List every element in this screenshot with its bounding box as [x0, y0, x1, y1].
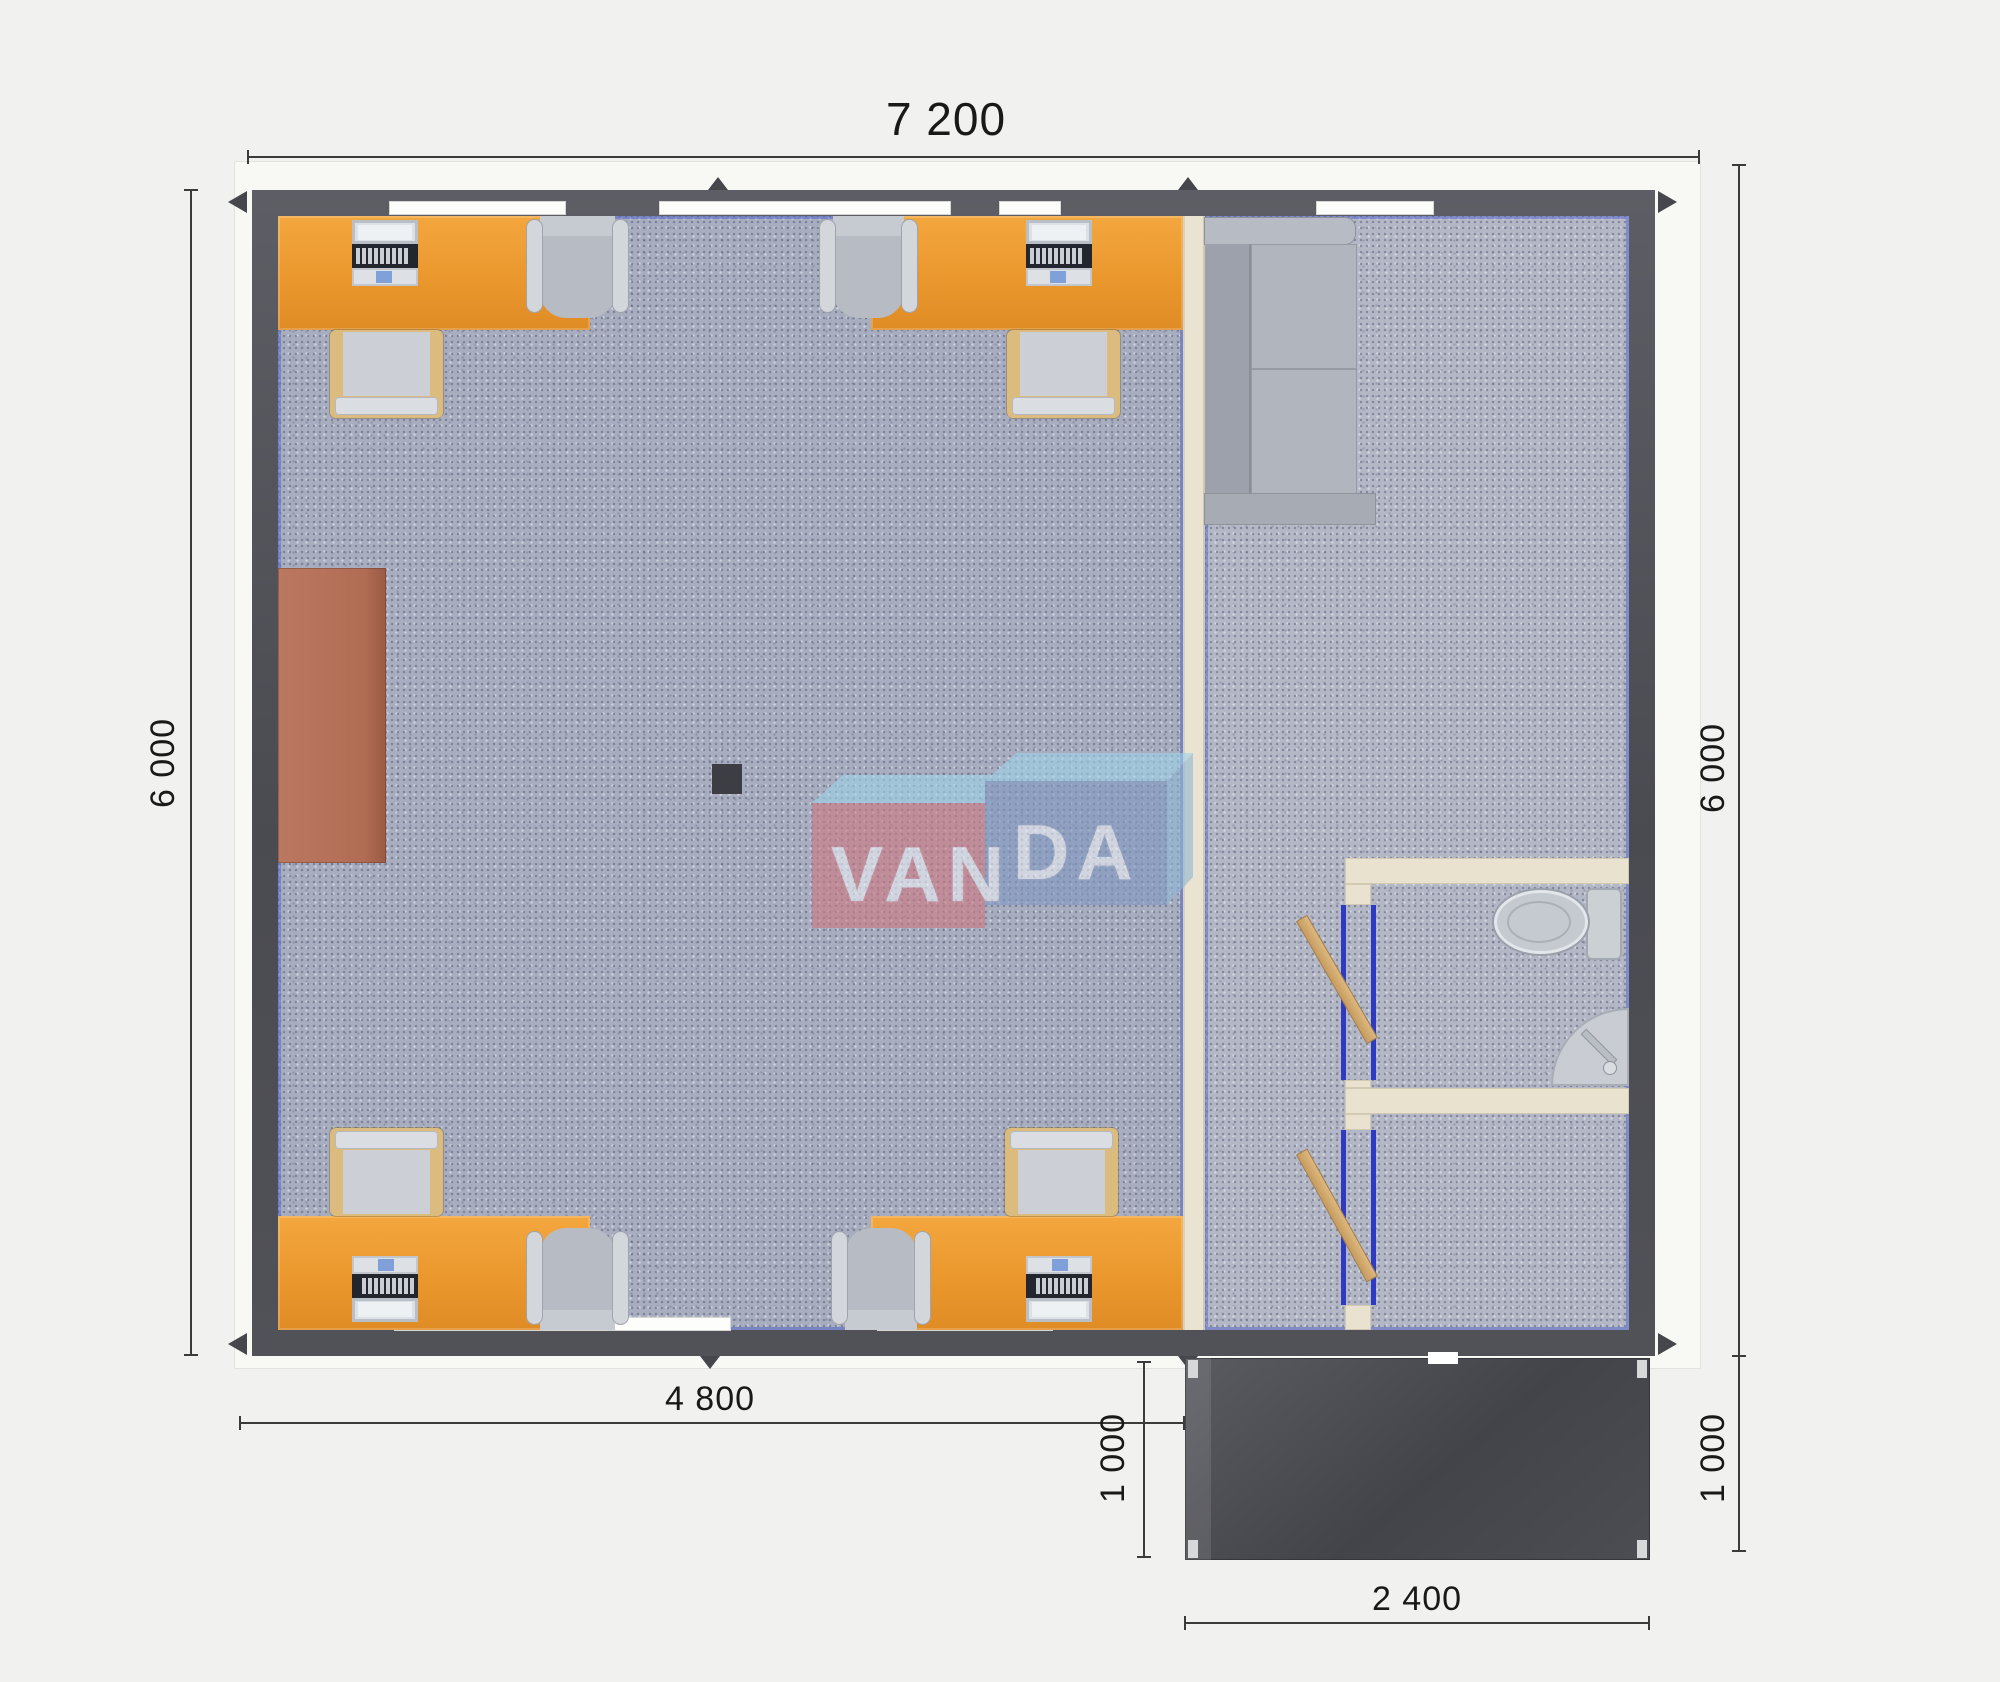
corner-marker-icon [228, 191, 247, 213]
entrance-porch [1185, 1358, 1650, 1560]
dimension-label-porch-right: 1 000 [1694, 1358, 1734, 1558]
porch-post [1637, 1360, 1647, 1378]
sofa-seat [1251, 369, 1357, 494]
office-chair [1005, 1128, 1118, 1216]
floor-column [712, 764, 742, 794]
dimension-label-bottom-left: 4 800 [610, 1380, 810, 1419]
toilet [1494, 890, 1588, 954]
wc-wall [1345, 1088, 1629, 1114]
armchair [527, 1228, 628, 1330]
laptop [352, 220, 418, 286]
dimension-tick [184, 1354, 198, 1356]
corner-marker-icon [228, 1333, 247, 1355]
dimension-tick [1137, 1556, 1151, 1558]
office-chair [330, 330, 443, 418]
entrance-door-threshold [1428, 1352, 1458, 1364]
dimension-line-top [248, 156, 1700, 158]
laptop [1026, 220, 1092, 286]
dimension-line-porch-left [1143, 1362, 1145, 1558]
office-chair [330, 1128, 443, 1216]
module-joint-marker-icon [1178, 177, 1198, 190]
laptop [352, 1256, 418, 1322]
porch-post [1637, 1540, 1647, 1558]
dimension-line-right [1738, 165, 1740, 1552]
laptop-base [352, 268, 418, 286]
corner-marker-icon [1658, 1333, 1677, 1355]
dimension-label-porch-bottom: 2 400 [1317, 1580, 1517, 1619]
dimension-tick [1732, 1550, 1746, 1552]
porch-post [1188, 1360, 1198, 1378]
floor-plan-canvas: VAN DA 7 200 6 000 6 000 1 000 4 800 1 0… [0, 0, 2000, 1682]
wc-wall [1345, 1080, 1371, 1088]
window [1317, 202, 1433, 214]
dimension-tick [1732, 164, 1746, 166]
dimension-tick [1183, 1416, 1185, 1430]
toilet-tank [1586, 888, 1622, 960]
porch-post [1188, 1540, 1198, 1558]
window [390, 202, 565, 214]
dimension-tick [1184, 1616, 1186, 1630]
dimension-tick [239, 1416, 241, 1430]
vanda-logo-watermark: VAN DA [795, 737, 1195, 967]
laptop [1026, 1256, 1092, 1322]
window [1000, 202, 1060, 214]
dimension-tick [1698, 150, 1700, 164]
sofa-armrest [1205, 218, 1355, 244]
corner-marker-icon [1658, 191, 1677, 213]
office-chair [1007, 330, 1120, 418]
dimension-tick [247, 150, 249, 164]
armchair [820, 216, 917, 318]
sofa-backrest [1205, 244, 1251, 494]
window [660, 202, 950, 214]
dimension-tick [1648, 1616, 1650, 1630]
dimension-line-porch-bottom [1185, 1622, 1650, 1624]
sofa [1205, 218, 1380, 528]
dimension-label-top: 7 200 [846, 92, 1046, 146]
dimension-line-left [190, 190, 192, 1356]
dimension-tick [1732, 1355, 1746, 1357]
module-joint-marker-icon [700, 1356, 720, 1369]
dimension-line-bottom-left [240, 1422, 1185, 1424]
sideboard-cabinet [278, 568, 386, 863]
dimension-tick [1137, 1361, 1151, 1363]
armchair [527, 216, 628, 318]
sofa-seat [1251, 244, 1357, 369]
dimension-label-right: 6 000 [1694, 668, 1734, 868]
module-joint-marker-icon [708, 177, 728, 190]
door-frame [1371, 905, 1376, 1080]
sofa-armrest [1205, 494, 1375, 524]
laptop-keyboard [352, 244, 418, 268]
laptop-screen [352, 220, 418, 244]
armchair [832, 1228, 930, 1330]
dimension-label-porch-left: 1 000 [1094, 1358, 1134, 1558]
logo-text-da: DA [1013, 807, 1140, 898]
faucet-icon [1604, 1062, 1616, 1074]
wc-wall [1345, 1114, 1371, 1130]
dimension-tick [184, 189, 198, 191]
wc-wall [1345, 858, 1629, 884]
logo-text-van: VAN [831, 829, 1011, 920]
dimension-label-left: 6 000 [144, 663, 184, 863]
wc-wall [1345, 1305, 1371, 1330]
wc-wall [1345, 884, 1371, 905]
